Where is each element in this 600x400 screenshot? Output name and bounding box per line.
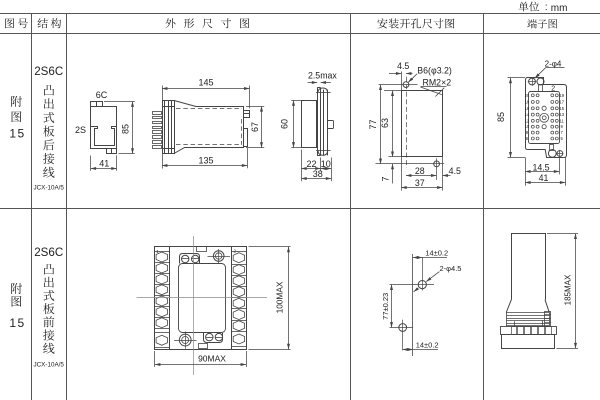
svg-text:185MAX: 185MAX <box>564 274 573 305</box>
svg-text:67: 67 <box>250 122 260 132</box>
svg-text:4.5: 4.5 <box>449 166 461 176</box>
svg-text:4.5: 4.5 <box>397 61 409 71</box>
svg-text:RM2×2: RM2×2 <box>423 78 452 88</box>
svg-text:mm: mm <box>551 3 568 14</box>
svg-text:15: 15 <box>559 106 564 111</box>
svg-text:15: 15 <box>9 316 25 330</box>
svg-text:B6(φ3.2): B6(φ3.2) <box>417 66 452 76</box>
svg-text:2S: 2S <box>75 125 86 135</box>
svg-text:37: 37 <box>415 178 425 188</box>
svg-text::: : <box>545 1 548 13</box>
svg-text:41: 41 <box>99 158 109 168</box>
svg-text:2-φ4.5: 2-φ4.5 <box>440 264 462 273</box>
svg-text:17: 17 <box>559 99 564 104</box>
svg-text:85: 85 <box>120 124 130 134</box>
svg-text:135: 135 <box>198 156 213 166</box>
svg-text:2-φ4: 2-φ4 <box>545 59 562 68</box>
svg-text:22: 22 <box>306 159 316 169</box>
svg-text:14: 14 <box>525 112 530 117</box>
svg-text:2S6C: 2S6C <box>34 65 63 78</box>
svg-text:90MAX: 90MAX <box>198 353 226 363</box>
svg-text:12: 12 <box>525 118 530 123</box>
svg-text:18: 18 <box>525 99 530 104</box>
svg-text:77: 77 <box>368 119 378 129</box>
svg-text:14±0.2: 14±0.2 <box>425 249 448 258</box>
svg-text:JCX-10A/5: JCX-10A/5 <box>33 184 64 191</box>
svg-text:JCX-10A/5: JCX-10A/5 <box>33 361 64 368</box>
svg-text:7: 7 <box>380 176 390 181</box>
svg-text:11: 11 <box>560 118 565 123</box>
svg-text:77±0.23: 77±0.23 <box>381 293 390 320</box>
svg-text:28: 28 <box>415 166 425 176</box>
svg-text:15: 15 <box>9 126 25 140</box>
svg-text:60: 60 <box>280 119 290 129</box>
svg-text:14.5: 14.5 <box>532 162 549 172</box>
svg-text:10: 10 <box>525 124 530 129</box>
svg-text:14±0.2: 14±0.2 <box>416 341 439 350</box>
svg-text:85: 85 <box>496 112 506 122</box>
svg-text:13: 13 <box>559 112 564 117</box>
svg-text:41: 41 <box>539 173 549 183</box>
svg-text:16: 16 <box>525 106 530 111</box>
svg-text:100MAX: 100MAX <box>275 281 285 313</box>
svg-text:38: 38 <box>313 169 323 179</box>
svg-text:63: 63 <box>380 118 390 128</box>
svg-text:20: 20 <box>525 93 530 98</box>
svg-text:2.5max: 2.5max <box>308 71 337 81</box>
svg-text:10: 10 <box>321 159 331 169</box>
svg-text:19: 19 <box>559 93 564 98</box>
svg-text:6C: 6C <box>96 90 108 100</box>
svg-text:2S6C: 2S6C <box>34 246 63 259</box>
svg-text:145: 145 <box>198 77 213 87</box>
